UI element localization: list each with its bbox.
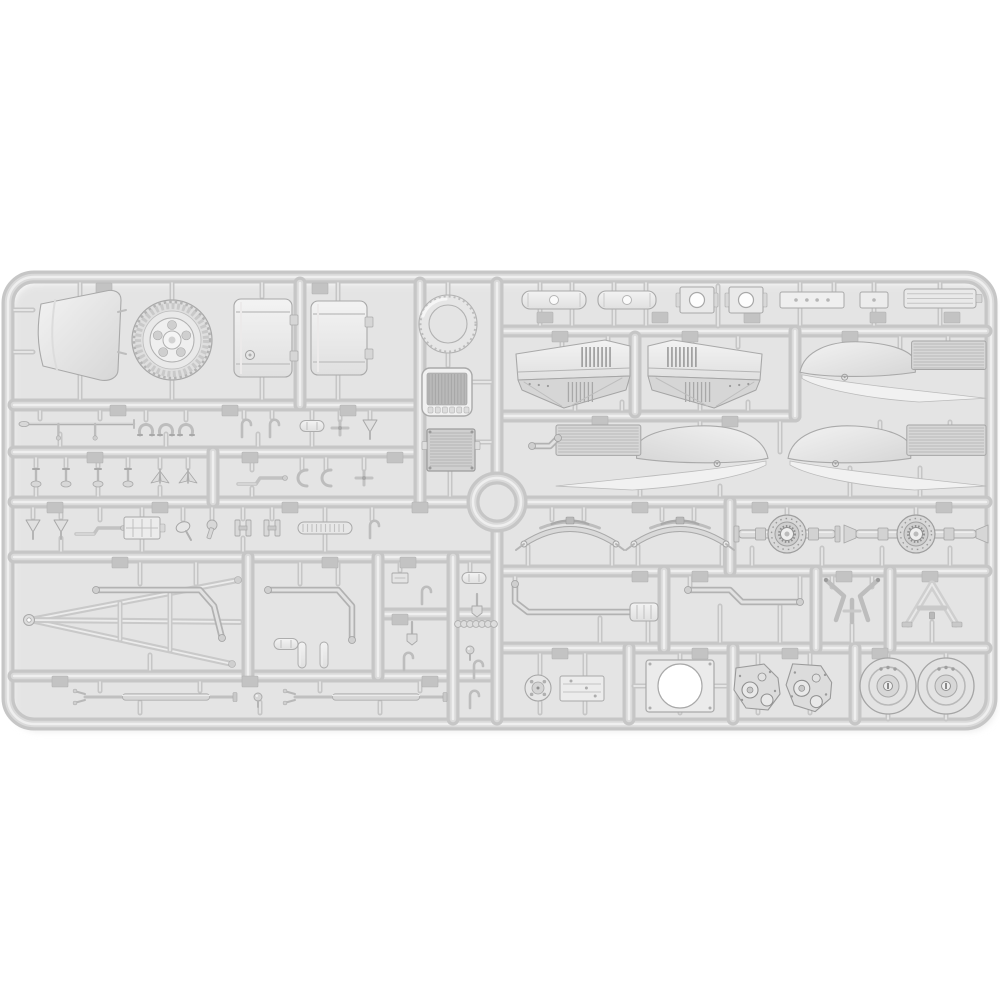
reservoir-2 xyxy=(320,642,328,668)
bumper-bar-2 xyxy=(598,291,656,309)
radiator-core xyxy=(422,429,480,471)
seat-base xyxy=(646,660,714,712)
air-tank-small xyxy=(300,421,324,432)
step-plate xyxy=(298,522,352,534)
hub-cap xyxy=(525,675,551,701)
bracket-a xyxy=(392,573,408,583)
photo-canvas xyxy=(0,0,1000,1000)
sill-plate xyxy=(780,292,844,308)
engine-mount-1 xyxy=(676,287,718,313)
engine-mount-2 xyxy=(725,287,767,313)
bumper-bar-1 xyxy=(522,291,586,309)
sprue-photo xyxy=(0,0,1000,1000)
small-muffler xyxy=(274,639,298,650)
brake-drum-1 xyxy=(860,658,916,714)
spare-wheel xyxy=(132,300,212,380)
brake-drum-2 xyxy=(918,658,974,714)
data-plate xyxy=(560,676,604,701)
fuel-tank-left xyxy=(234,299,298,377)
canvas-tilt xyxy=(38,290,126,380)
capsule-2 xyxy=(462,573,486,584)
reservoir-1 xyxy=(298,642,306,668)
radiator-grille xyxy=(422,368,472,416)
fuel-tank-right xyxy=(311,301,373,375)
dash-box xyxy=(124,517,165,539)
ribbed-plate xyxy=(904,289,982,308)
main-muffler xyxy=(630,603,658,621)
small-plate xyxy=(860,292,888,308)
